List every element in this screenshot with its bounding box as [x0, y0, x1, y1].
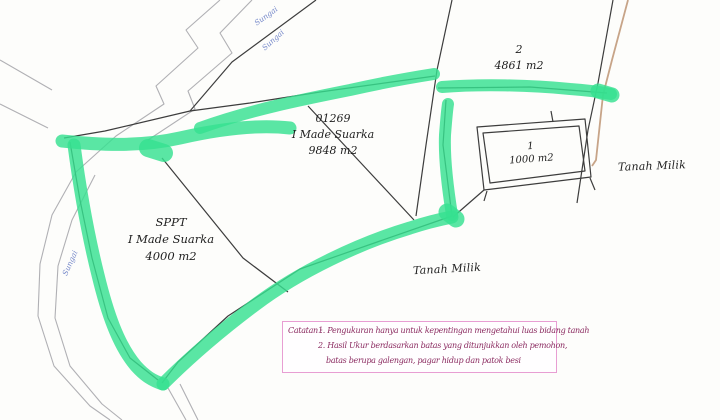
parcel-2-number: 2: [495, 42, 544, 58]
notes-item-3: batas berupa galengan, pagar hidup dan p…: [326, 356, 521, 365]
parcel-01269-number: 01269: [292, 111, 374, 127]
river-tributary: [0, 104, 48, 128]
parcel-sppt-area: 4000 m2: [128, 248, 214, 265]
highlight-northeast-endblob: [598, 91, 612, 95]
survey-tick: [484, 191, 487, 201]
river-tributary: [0, 60, 52, 90]
parcel-sppt-number: SPPT: [128, 214, 214, 231]
boundary-to-river: [190, 0, 316, 111]
parcel-01269-label: 01269 I Made Suarka 9848 m2: [292, 111, 374, 159]
notes-item-2: 2. Hasil Ukur berdasarkan batas yang dit…: [318, 341, 567, 350]
parcel-2-label: 2 4861 m2: [495, 42, 544, 74]
survey-tick: [551, 111, 553, 122]
parcel-sppt-owner: I Made Suarka: [128, 231, 214, 248]
highlight-northeast-stroke: [442, 85, 611, 94]
river-outlet: [168, 388, 186, 420]
survey-sketch-map: Sungai Sungai Sungai 2 4861 m2 01269 I M…: [0, 0, 720, 420]
parcel-1-label: 1 1000 m2: [508, 138, 554, 167]
parcel-2-area: 4861 m2: [495, 58, 544, 74]
parcel-01269-area: 9848 m2: [292, 143, 374, 159]
adjacent-land-label-east: Tanah Milik: [618, 158, 686, 173]
survey-tick: [590, 178, 595, 190]
notes-item-1: 1. Pengukuran hanya untuk kepentingan me…: [318, 326, 589, 335]
highlight-junction-blob: [148, 148, 164, 153]
highlight-east-stroke: [445, 104, 452, 215]
highlight-north-stroke: [62, 127, 290, 145]
parcel-sppt-label: SPPT I Made Suarka 4000 m2: [128, 214, 214, 265]
highlight-corner-blob: [447, 212, 456, 219]
parcel-01269-owner: I Made Suarka: [292, 127, 374, 143]
notes-box: Catatan : 1. Pengukuran hanya untuk kepe…: [282, 321, 557, 373]
